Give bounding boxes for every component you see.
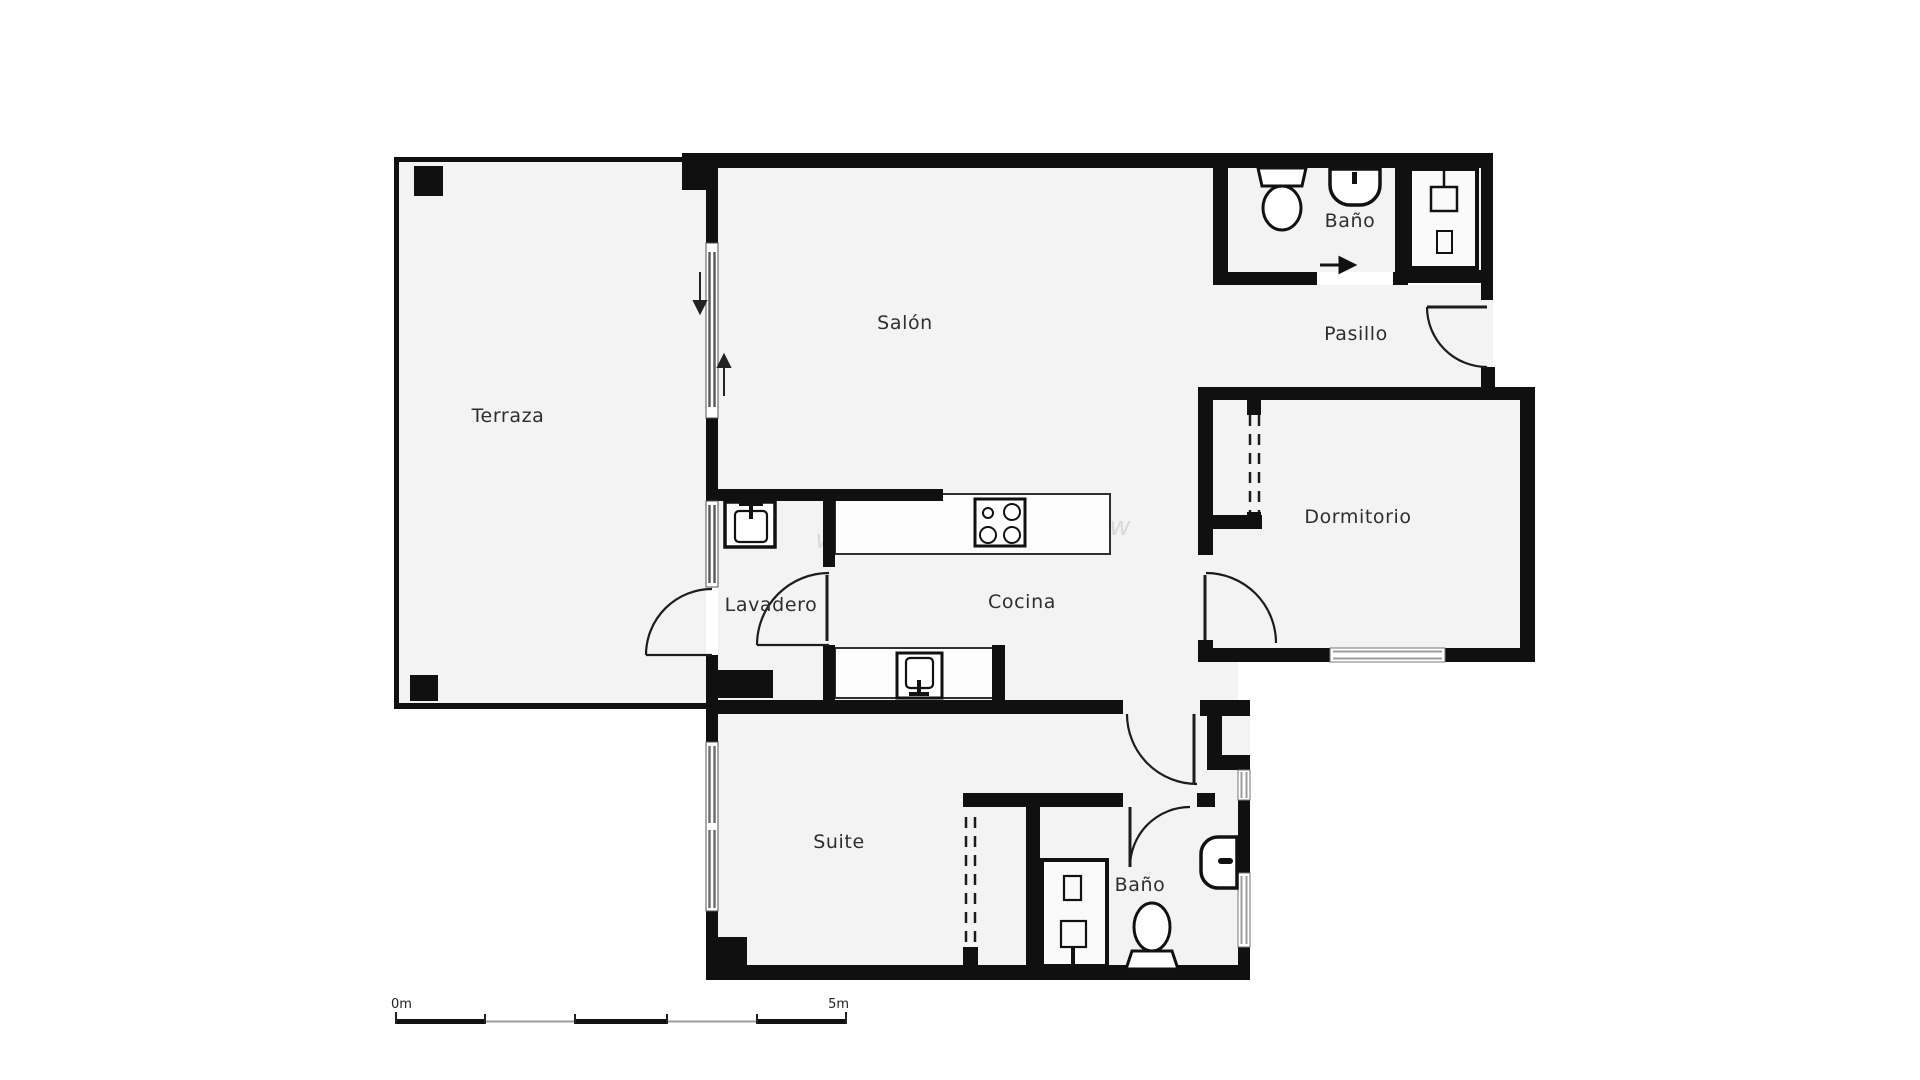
room-label-salon: Salón bbox=[877, 312, 933, 334]
room-label-pasillo: Pasillo bbox=[1324, 323, 1388, 345]
window bbox=[706, 742, 718, 911]
washing-machine-icon bbox=[725, 501, 775, 547]
shower-icon bbox=[1042, 860, 1107, 966]
washbasin-icon bbox=[1201, 837, 1237, 888]
room-label-suite: Suite bbox=[813, 831, 865, 853]
toilet-icon bbox=[1258, 168, 1306, 230]
room-label-dormitorio: Dormitorio bbox=[1304, 506, 1411, 528]
window bbox=[706, 501, 718, 587]
terraza-top-wall bbox=[394, 157, 682, 162]
room-label-bano-top: Baño bbox=[1325, 210, 1376, 232]
floor-plan-svg: w w bbox=[0, 0, 1920, 1080]
room-label-terraza: Terraza bbox=[471, 405, 545, 427]
room-label-cocina: Cocina bbox=[988, 591, 1056, 613]
stove-icon bbox=[975, 499, 1025, 546]
room-label-bano-suite: Baño bbox=[1115, 874, 1166, 896]
sliding-window bbox=[706, 243, 718, 418]
terraza-left-wall bbox=[394, 157, 399, 708]
scale-start-label: 0m bbox=[391, 997, 412, 1012]
scale-end-label: 5m bbox=[828, 997, 849, 1012]
terraza-bottom-wall bbox=[394, 703, 718, 709]
floor-areas bbox=[398, 161, 1520, 965]
kitchen-sink-icon bbox=[897, 653, 942, 698]
watermark-text: w bbox=[1109, 512, 1131, 542]
floor-plan: w w bbox=[0, 0, 1920, 1080]
kitchen-counter-top bbox=[835, 494, 1110, 554]
window bbox=[1330, 648, 1445, 662]
shower-icon bbox=[1410, 169, 1477, 268]
pillar bbox=[410, 675, 438, 701]
scale-bar: 0m 5m bbox=[391, 997, 849, 1024]
room-label-lavadero: Lavadero bbox=[725, 594, 818, 616]
washbasin-icon bbox=[1330, 169, 1380, 205]
pillar bbox=[414, 166, 443, 196]
